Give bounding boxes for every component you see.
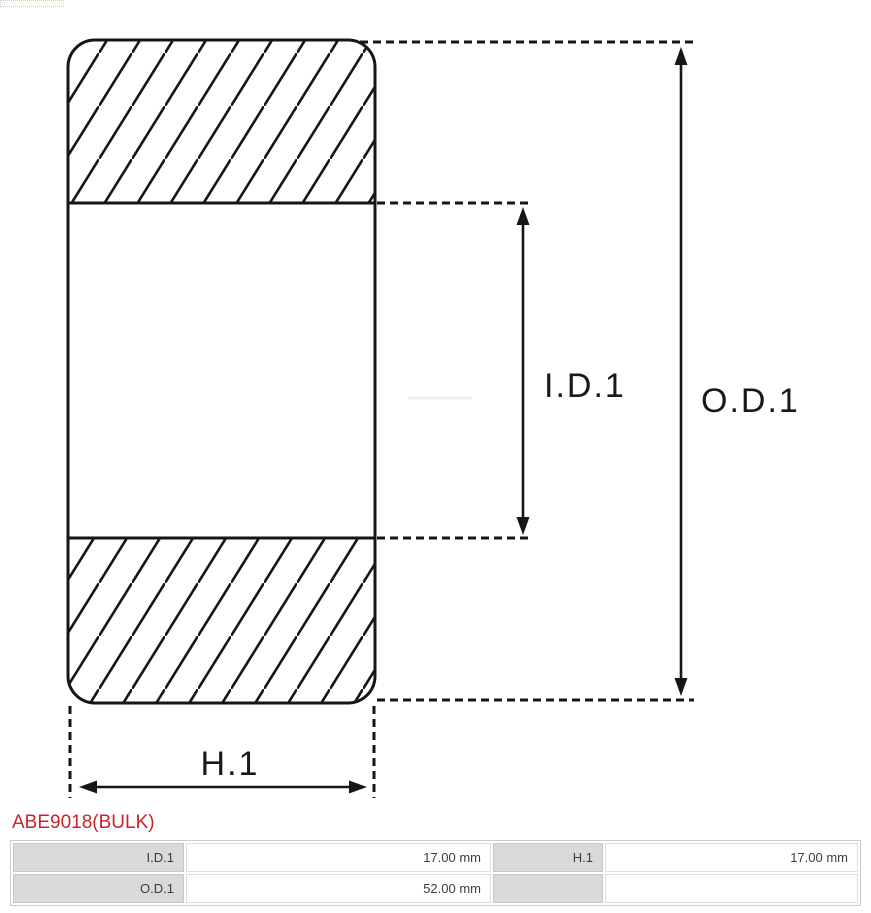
inner-diameter-arrow [517,207,530,535]
height-label: H.1 [201,745,260,783]
spec-label-cell: O.D.1 [13,874,184,903]
table-row: I.D.1 17.00 mm H.1 17.00 mm [13,843,858,872]
spec-label-cell [493,874,603,903]
spec-value-cell: 17.00 mm [186,843,491,872]
spec-value-cell: 17.00 mm [605,843,858,872]
part-number-link[interactable]: ABE9018(BULK) [12,811,155,834]
spec-value-cell [605,874,858,903]
bore-lines [68,203,375,538]
spec-label-cell: H.1 [493,843,603,872]
spec-table: I.D.1 17.00 mm H.1 17.00 mm O.D.1 52.00 … [10,840,861,906]
page: I.D.1 O.D.1 H.1 ABE9018(BULK) I.D.1 17.0… [0,0,871,913]
bearing-diagram: I.D.1 O.D.1 H.1 [0,0,871,810]
outer-diameter-label: O.D.1 [701,382,800,420]
spec-value-cell: 52.00 mm [186,874,491,903]
table-row: O.D.1 52.00 mm [13,874,858,903]
inner-diameter-label: I.D.1 [544,367,626,405]
hatched-sections [68,40,375,703]
spec-label-cell: I.D.1 [13,843,184,872]
outer-diameter-arrow [675,47,688,696]
